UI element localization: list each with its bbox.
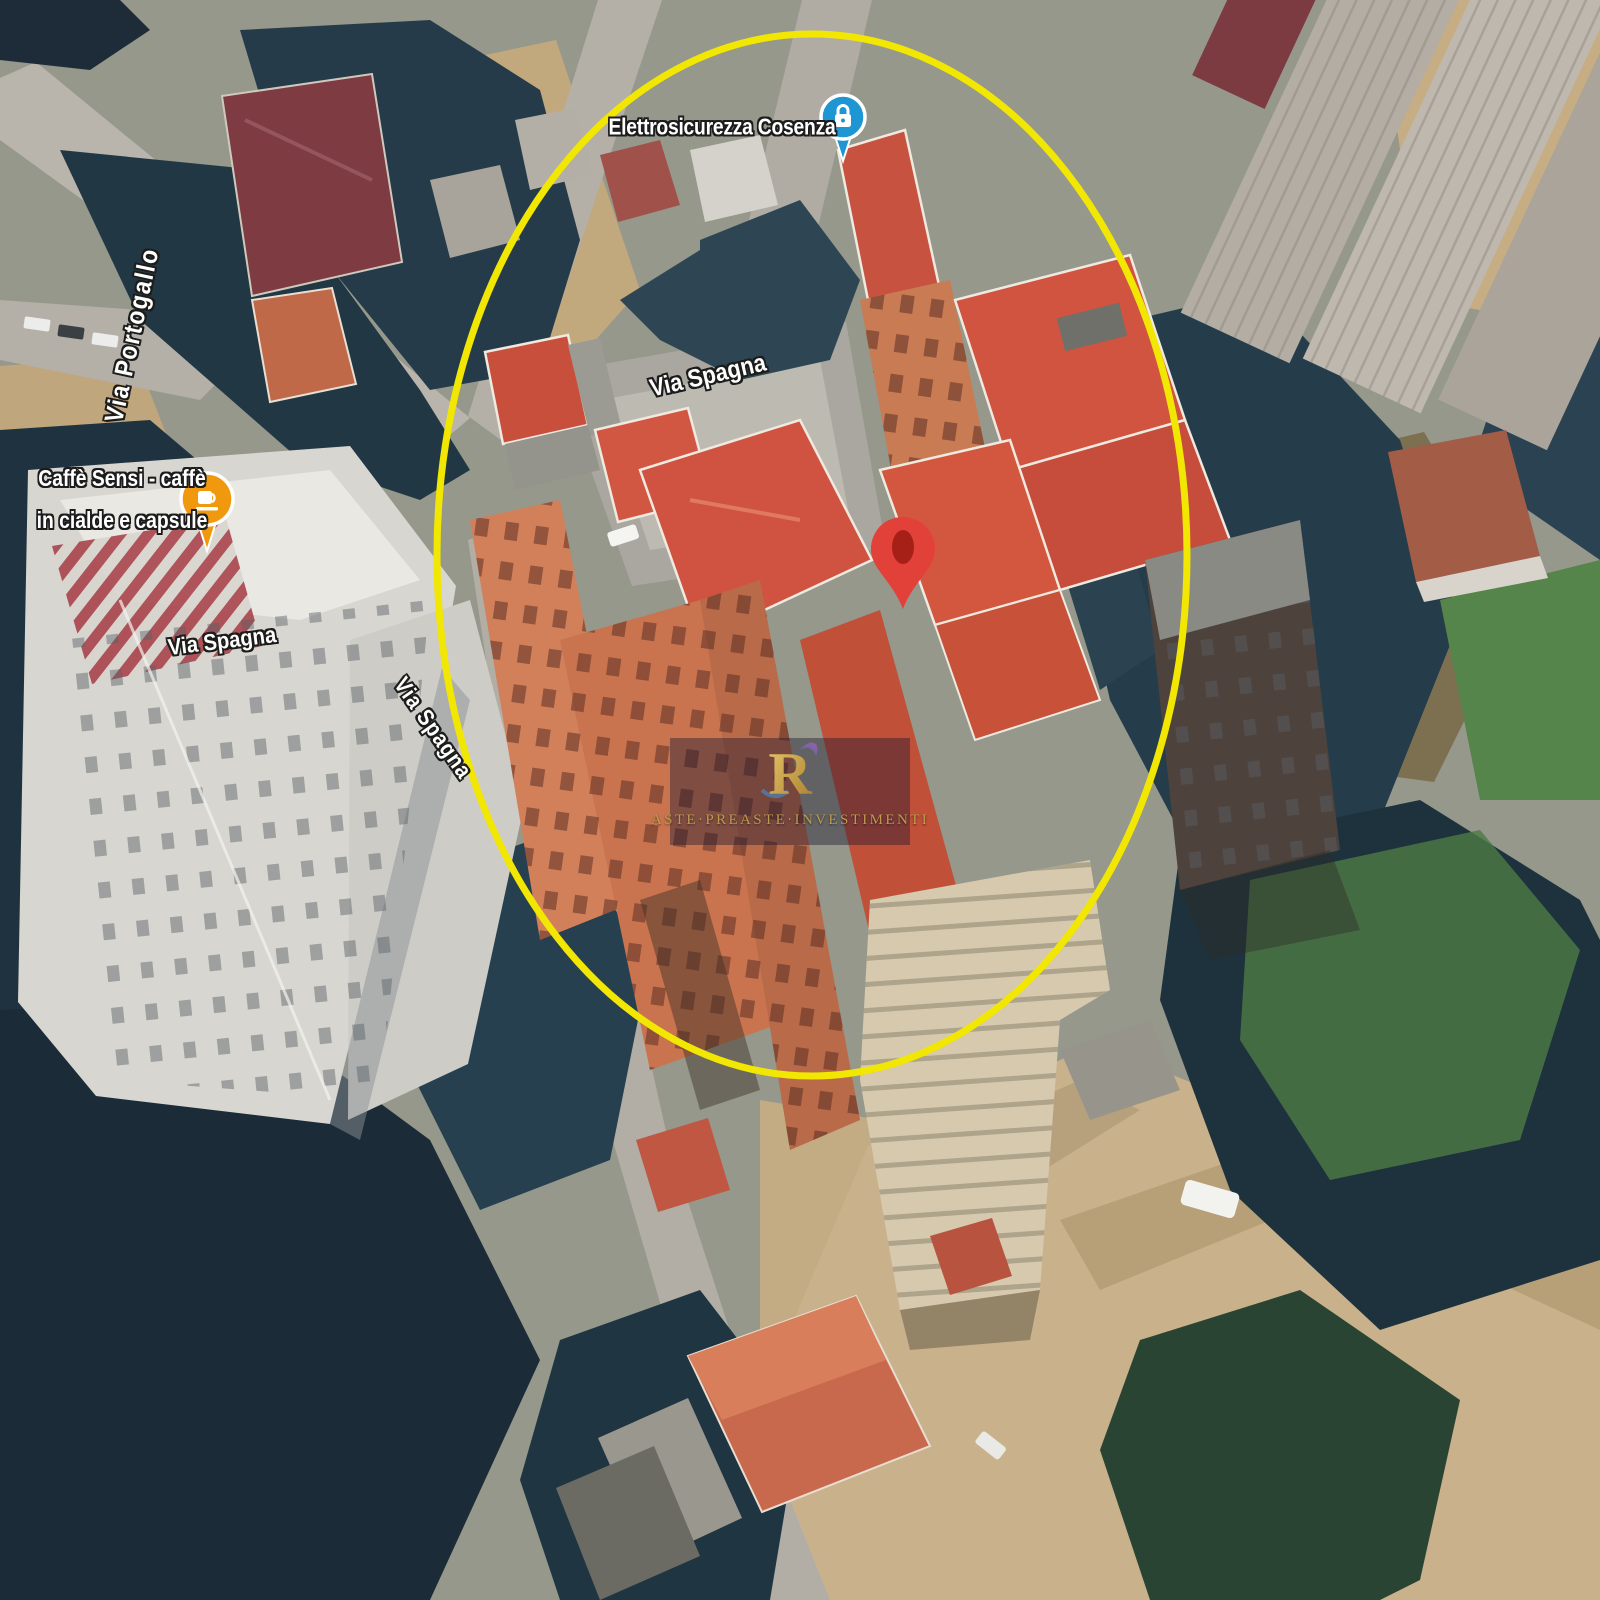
watermark: R ASTE·PREASTE·INVESTIMENTI [670, 738, 910, 845]
watermark-caption: ASTE·PREASTE·INVESTIMENTI [651, 812, 929, 829]
watermark-monogram: R [742, 738, 838, 810]
cafe-poi-label-line2: in cialde e capsule [37, 499, 208, 541]
svg-text:R: R [768, 741, 812, 807]
cafe-poi-label: Caffè Sensi - caffè in cialde e capsule [37, 457, 208, 541]
aerial-map-image: Elettrosicurezza Cosenza Caffè Sensi - c… [0, 0, 1600, 1600]
cafe-poi-label-line1: Caffè Sensi - caffè [37, 457, 208, 499]
store-poi-label: Elettrosicurezza Cosenza [609, 114, 836, 141]
